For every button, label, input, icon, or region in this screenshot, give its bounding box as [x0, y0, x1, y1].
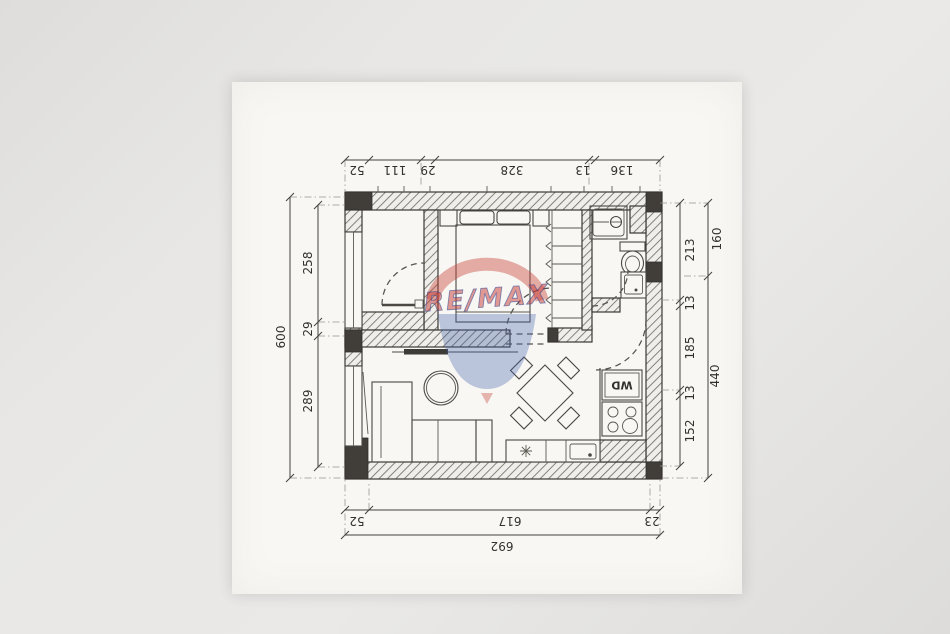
kitchen-bottom-counter: [506, 440, 600, 462]
sofa: [372, 382, 492, 462]
washer-dryer-label: WD: [611, 379, 632, 392]
coffee-table: [424, 371, 458, 405]
dim-line-top: [341, 156, 664, 164]
dim-line-bottom-segments: [341, 506, 664, 514]
wall-room1-bottom: [362, 312, 424, 330]
dim-left-2: 289: [301, 390, 315, 413]
wardrobe-shelves: [552, 228, 582, 318]
column-right-middle: [646, 262, 662, 282]
hob-icon: [520, 445, 532, 457]
dim-right-2: 185: [683, 337, 697, 360]
dim-top-4: 13: [575, 163, 590, 177]
wall-bathroom-stub: [592, 298, 620, 312]
dining-table: [517, 365, 573, 421]
dim-top-2: 29: [420, 163, 435, 177]
dim-top-5: 136: [611, 163, 634, 177]
shower: [590, 206, 627, 239]
wardrobe: [546, 210, 582, 328]
dim-line-bottom-overall: [341, 531, 664, 539]
nightstand-left: [440, 210, 457, 226]
balloon-bottom-blue: [438, 314, 536, 389]
dim-right-0: 213: [683, 239, 697, 262]
entry-hall: [596, 320, 646, 370]
pillow-left: [460, 211, 494, 224]
room-upper-left: [382, 263, 424, 308]
dim-bottom-2: 23: [644, 514, 659, 528]
window-upper-left: [345, 232, 362, 328]
chair: [511, 407, 533, 429]
dim-bottom-overall: 692: [491, 539, 514, 553]
dim-left-overall: 600: [274, 326, 288, 349]
washer-dryer: WD: [602, 370, 642, 400]
pillow-right: [497, 211, 530, 224]
toilet: [620, 242, 645, 275]
balloon-flag: [481, 393, 493, 404]
dim-bottom-0: 52: [349, 514, 364, 528]
stove: [602, 402, 642, 436]
wall-bottom: [345, 462, 662, 479]
dim-top-0: 52: [349, 163, 364, 177]
dim-left-1: 29: [301, 321, 315, 336]
dining-set: [511, 357, 580, 429]
sink-drain-dot: [588, 453, 592, 457]
wall-left-upper: [345, 210, 362, 232]
floor-plan-drawing: WD: [0, 0, 950, 634]
dim-left-0: 258: [301, 252, 315, 275]
chair: [558, 407, 580, 429]
wall-right: [646, 210, 662, 462]
column-left-middle: [345, 330, 362, 352]
nightstand-right: [533, 210, 549, 226]
dim-top-1: 111: [384, 163, 407, 177]
dim-right-outer-1: 440: [708, 365, 722, 388]
column-top-left: [345, 192, 372, 210]
dim-right-3: 13: [683, 385, 697, 400]
dim-right-outer-0: 160: [710, 228, 724, 251]
wall-top: [345, 192, 662, 210]
chair: [558, 357, 580, 379]
column-top-right: [646, 192, 662, 212]
window-living-room: [345, 366, 368, 446]
door-arc-entrance: [596, 320, 646, 370]
coffee-table-inner: [427, 374, 456, 403]
casement-swing-line: [363, 372, 368, 434]
column-wardrobe-corner: [548, 328, 558, 342]
counter-corner-block: [600, 440, 646, 462]
door-arc-room1: [382, 263, 424, 305]
scanned-floor-plan: WD: [0, 0, 950, 634]
bathroom-sink: [621, 272, 646, 298]
wall-tick-marks: [378, 186, 640, 192]
duct-shaft: [630, 206, 646, 233]
door-hinge-block: [415, 300, 423, 308]
bathroom: [590, 206, 646, 306]
dim-right-1: 13: [683, 295, 697, 310]
dim-right-4: 152: [683, 420, 697, 443]
column-bottom-right: [646, 462, 662, 479]
tv: [404, 349, 448, 355]
dim-bottom-1: 617: [499, 514, 522, 528]
dim-top-3: 328: [501, 163, 524, 177]
